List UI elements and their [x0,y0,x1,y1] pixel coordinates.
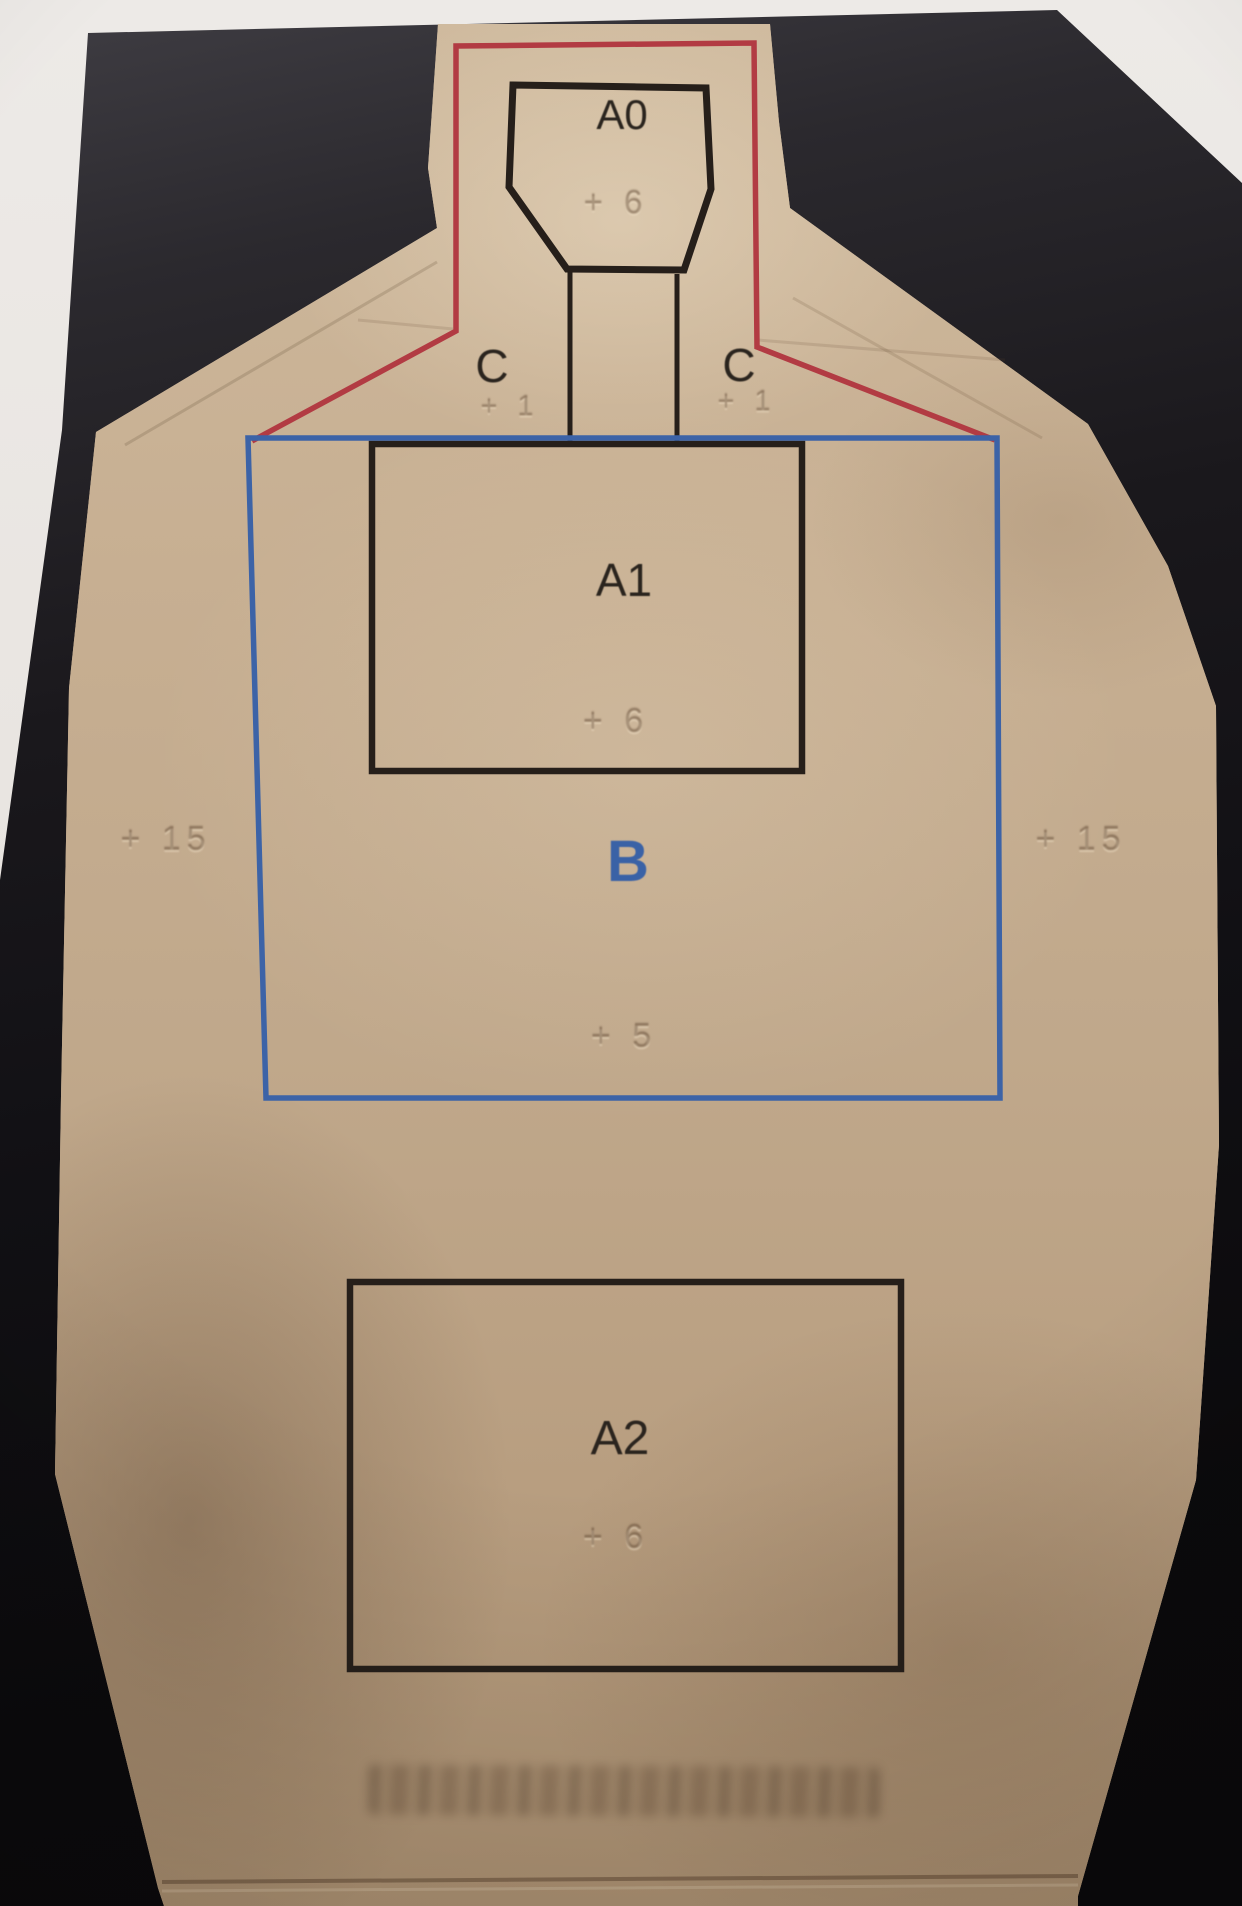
neck-left-label: C [475,343,508,389]
bottom-fold-highlight [162,1885,1078,1891]
body-zone-score: + 5 [591,1019,657,1053]
pelvis-zone-score: + 6 [583,1520,649,1554]
edge-left-score: + 15 [120,822,211,856]
chest-zone-score: + 6 [583,704,649,738]
edge-right-score: + 15 [1035,822,1126,856]
crease-line [358,320,453,329]
chest-zone-label: A1 [596,557,652,603]
bottom-fold-crease [162,1876,1078,1882]
crease-line [125,262,437,445]
neck-left-score: + 1 [480,393,539,422]
printed-linework [0,0,1242,1906]
photo-of-shooting-target: A0 C C A1 B A2 + 6 + 1 + 1 + 6 + 5 + 15 … [0,0,1242,1906]
pelvis-zone-outline [350,1282,901,1669]
head-zone-score: + 6 [584,186,649,219]
neck-right-score: + 1 [717,388,776,417]
neck-right-label: C [722,342,755,388]
head-zone-label: A0 [596,94,647,136]
crease-line [758,340,1005,360]
body-zone-label: B [607,833,649,891]
pelvis-zone-label: A2 [591,1415,650,1463]
crease-line [793,298,1042,438]
